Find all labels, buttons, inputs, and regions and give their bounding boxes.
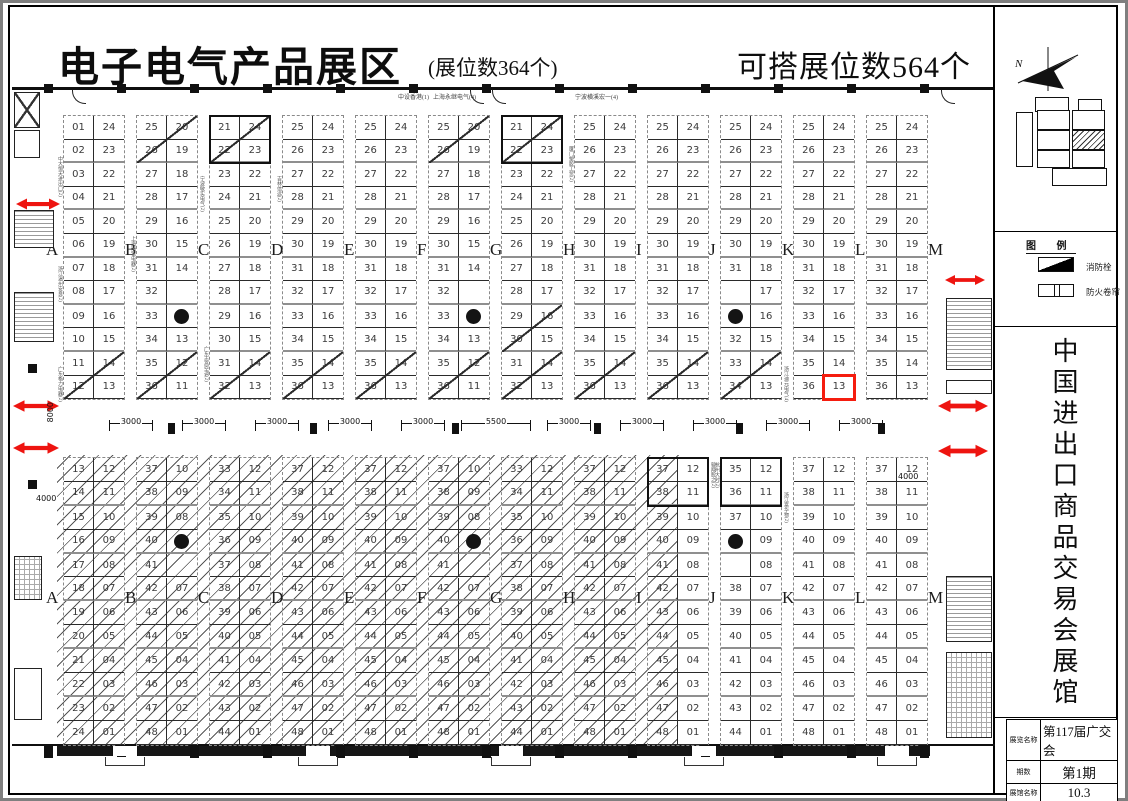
title-block-label: 展览名称 [1007, 720, 1041, 760]
booth-cell: 20 [94, 210, 124, 234]
booth-cell: 31 [867, 258, 897, 282]
booth-cell: 17 [64, 554, 94, 578]
booth-cell: 04 [824, 649, 854, 673]
booth-cell: 36 [283, 376, 313, 400]
booth-cell: 30 [356, 234, 386, 258]
booth-cell: 48 [867, 721, 897, 745]
booth-cell: 22 [313, 163, 343, 187]
booth-cell: 09 [605, 530, 635, 554]
booth-cell: 44 [648, 625, 678, 649]
booth-cell: 06 [240, 601, 270, 625]
wall-structure [14, 130, 40, 158]
booth-cell: 27 [794, 163, 824, 187]
booth-cell: 24 [386, 116, 416, 140]
booth-cell: 06 [386, 601, 416, 625]
booth-cell: 36 [648, 376, 678, 400]
booth-cell: 39 [721, 601, 751, 625]
booth-cell: 35 [867, 352, 897, 376]
booth-cell: 21 [313, 187, 343, 211]
booth-cell: 28 [867, 187, 897, 211]
booth-cell: 14 [824, 352, 854, 376]
booth-cell: 33 [648, 305, 678, 329]
booth-cell: 08 [459, 506, 489, 530]
column-letter-E: E [344, 240, 354, 260]
booth-group: 2124222323222421252026192718281729163015… [209, 115, 271, 400]
booth-cell: 08 [751, 554, 781, 578]
booth-cell: 22 [751, 163, 781, 187]
booth-cell: 22 [94, 163, 124, 187]
booth-cell: 38 [502, 578, 532, 602]
booth-cell: 17 [897, 281, 927, 305]
booth-group: 2524262327222821292030193118321733163415… [574, 115, 636, 400]
booth-cell: 11 [897, 482, 927, 506]
booth-cell: 11 [678, 482, 708, 506]
booth-cell: 09 [240, 530, 270, 554]
wall-pillar [701, 84, 710, 93]
aisle-dimension: 5500 [461, 420, 531, 434]
booth-cell: 34 [794, 328, 824, 352]
booth-cell: 08 [678, 554, 708, 578]
exhibitor-label: 上海瑞银电器(2) [130, 236, 135, 272]
booth-cell: 16 [605, 305, 635, 329]
booth-cell: 10 [897, 506, 927, 530]
column-letter-J: J [709, 588, 716, 608]
booth-cell: 25 [210, 210, 240, 234]
booth-cell: 39 [137, 506, 167, 530]
booth-cell: 12 [824, 458, 854, 482]
booth-cell: 02 [678, 697, 708, 721]
booth-cell: 06 [459, 601, 489, 625]
booth-group: 3712381139104009410842074306440545044603… [793, 457, 855, 746]
booth-cell: 40 [502, 625, 532, 649]
booth-cell: 46 [648, 673, 678, 697]
dimension-4000-left: 4000 [36, 494, 56, 503]
booth-cell: 30 [429, 234, 459, 258]
booth-cell: 23 [210, 163, 240, 187]
booth-cell: 10 [824, 506, 854, 530]
aisle-pillar [452, 423, 459, 434]
booth-cell: 47 [794, 697, 824, 721]
aisle-dimension: 3000 [693, 420, 737, 434]
booth-cell: 24 [751, 116, 781, 140]
column-letter-H: H [563, 588, 575, 608]
booth-cell: 25 [867, 116, 897, 140]
booth-cell: 03 [386, 673, 416, 697]
booth-cell: 19 [532, 234, 562, 258]
booth-cell: 21 [605, 187, 635, 211]
column-letter-D: D [271, 240, 283, 260]
booth-cell: 16 [64, 530, 94, 554]
booth-cell: 02 [897, 697, 927, 721]
booth-cell: 19 [751, 234, 781, 258]
booth-cell: 18 [94, 258, 124, 282]
booth-cell: 28 [794, 187, 824, 211]
booth-cell: 08 [897, 554, 927, 578]
booth-cell: 40 [210, 625, 240, 649]
booth-cell: 21 [64, 649, 94, 673]
booth-cell: 11 [64, 352, 94, 376]
column-letter-K: K [782, 240, 794, 260]
booth-cell: 18 [678, 258, 708, 282]
booth-cell: 30 [210, 328, 240, 352]
booth-cell: 31 [575, 258, 605, 282]
booth-cell: 13 [94, 376, 124, 400]
aisle-dimension: 3000 [328, 420, 372, 434]
booth-cell: 15 [386, 328, 416, 352]
booth-cell: 06 [751, 601, 781, 625]
booth-cell: 19 [313, 234, 343, 258]
booth-cell: 05 [605, 625, 635, 649]
booth-cell: 30 [137, 234, 167, 258]
booth-cell: 28 [429, 187, 459, 211]
booth-cell: 44 [210, 721, 240, 745]
booth-cell: 04 [897, 649, 927, 673]
booth-cell: 32 [137, 281, 167, 305]
booth-cell: 10 [678, 506, 708, 530]
booth-cell: 22 [824, 163, 854, 187]
booth-cell: 20 [240, 210, 270, 234]
booth-cell: 16 [532, 305, 562, 329]
booth-group: 3712381139104009410842074306440545044603… [647, 457, 709, 746]
booth-cell: 40 [575, 530, 605, 554]
column-letter-I: I [636, 588, 642, 608]
booth-cell: 40 [794, 530, 824, 554]
wall-structure [946, 652, 992, 738]
aisle-dimension: 3000 [182, 420, 226, 434]
structural-pillar [728, 309, 743, 324]
booth-group: 3712381139104009410842074306440545044603… [574, 457, 636, 746]
booth-cell: 03 [167, 673, 197, 697]
sidebar-rule [995, 231, 1118, 232]
exhibitor-label: 浙江迪元电气(4) [783, 366, 788, 402]
aisle-dimension: 3000 [839, 420, 883, 434]
column-letter-F: F [417, 240, 426, 260]
booth-cell: 13 [459, 328, 489, 352]
booth-cell: 13 [386, 376, 416, 400]
column-letter-M: M [928, 588, 943, 608]
booth-cell: 41 [502, 649, 532, 673]
booth-cell: 40 [283, 530, 313, 554]
booth-cell: 40 [721, 625, 751, 649]
booth-cell: 18 [313, 258, 343, 282]
booth-cell: 16 [824, 305, 854, 329]
booth-cell: 29 [575, 210, 605, 234]
entrance-gap [691, 746, 717, 756]
booth-cell: 42 [502, 673, 532, 697]
booth-cell: 23 [824, 140, 854, 164]
booth-cell: 04 [678, 649, 708, 673]
wall-pillar [555, 84, 564, 93]
column-letter-M: M [928, 240, 943, 260]
booth-cell: 05 [240, 625, 270, 649]
booth-cell: 45 [356, 649, 386, 673]
booth-cell: 05 [167, 625, 197, 649]
floorplan-screenshot: 电子电气产品展区 (展位数364个) 可搭展位数564个 01240223032… [0, 0, 1128, 801]
booth-group: 3512361137100908380739064005410442034302… [720, 457, 782, 746]
booth-cell: 21 [502, 116, 532, 140]
booth-cell: 35 [648, 352, 678, 376]
wall-structure [946, 380, 992, 394]
wall-pillar [774, 745, 783, 758]
booth-cell: 30 [794, 234, 824, 258]
booth-cell: 39 [210, 601, 240, 625]
booth-cell: 21 [824, 187, 854, 211]
booth-cell: 14 [313, 352, 343, 376]
booth-group: 3312341135103609370838073906400541044203… [209, 457, 271, 746]
booth-cell: 21 [210, 116, 240, 140]
booth-cell: 02 [605, 697, 635, 721]
booth-cell: 03 [240, 673, 270, 697]
column-letter-L: L [855, 240, 865, 260]
booth-cell: 06 [94, 601, 124, 625]
fire-shutter-icon [1038, 284, 1074, 297]
booth-cell: 10 [532, 506, 562, 530]
booth-cell: 30 [721, 234, 751, 258]
booth-cell: 27 [867, 163, 897, 187]
booth-cell: 38 [429, 482, 459, 506]
booth-cell: 21 [94, 187, 124, 211]
booth-cell: 05 [64, 210, 94, 234]
booth-cell: 32 [867, 281, 897, 305]
booth-cell: 23 [751, 140, 781, 164]
entrance-gap [884, 746, 910, 756]
key-plan-block [1037, 150, 1070, 168]
aisle-dimension: 3000 [255, 420, 299, 434]
booth-cell: 47 [137, 697, 167, 721]
booth-cell: 07 [313, 578, 343, 602]
exhibitor-label: 宁波敏实电气(2) [199, 176, 204, 212]
booth-cell: 35 [210, 506, 240, 530]
aisle-dimension: 3000 [401, 420, 445, 434]
booth-cell: 15 [64, 506, 94, 530]
key-plan-block [1072, 110, 1105, 130]
booth-cell: 11 [313, 482, 343, 506]
booth-cell: 17 [94, 281, 124, 305]
entrance-gap [498, 746, 524, 756]
booth-cell: 36 [575, 376, 605, 400]
booth-cell: 32 [575, 281, 605, 305]
booth-cell: 41 [648, 554, 678, 578]
wall-pillar [44, 745, 53, 758]
booth-cell: 46 [867, 673, 897, 697]
booth-cell: 25 [356, 116, 386, 140]
booth-cell: 12 [94, 458, 124, 482]
booth-cell: 42 [356, 578, 386, 602]
booth-cell: 21 [532, 187, 562, 211]
booth-cell: 01 [240, 721, 270, 745]
booth-cell: 13 [532, 376, 562, 400]
column-letter-D: D [271, 588, 283, 608]
booth-cell: 35 [575, 352, 605, 376]
entrance-gap [305, 746, 331, 756]
booth-cell: 39 [867, 506, 897, 530]
booth-cell: 19 [678, 234, 708, 258]
booth-cell: 33 [356, 305, 386, 329]
booth-cell: 39 [429, 506, 459, 530]
booth-cell: 40 [429, 530, 459, 554]
exhibitor-label: 杭州大时(2) [714, 462, 719, 488]
booth-cell: 41 [210, 649, 240, 673]
booth-cell: 31 [721, 258, 751, 282]
booth-cell: 17 [240, 281, 270, 305]
booth-cell: 43 [648, 601, 678, 625]
booth-cell: 27 [210, 258, 240, 282]
booth-cell: 22 [210, 140, 240, 164]
booth-cell: 05 [459, 625, 489, 649]
booth-cell: 43 [429, 601, 459, 625]
booth-cell: 38 [575, 482, 605, 506]
booth-cell: 07 [240, 578, 270, 602]
booth-cell: 48 [794, 721, 824, 745]
booth-cell: 14 [240, 352, 270, 376]
booth-cell: 31 [356, 258, 386, 282]
entrance-porch [298, 757, 338, 766]
booth-cell: 05 [897, 625, 927, 649]
booth-cell: 01 [167, 721, 197, 745]
booth-cell: 32 [210, 376, 240, 400]
legend-label-hydrant: 消防栓 [1086, 261, 1112, 273]
wall-pillar [628, 745, 637, 758]
booth-cell: 03 [678, 673, 708, 697]
booth-cell: 05 [532, 625, 562, 649]
booth-cell: 14 [386, 352, 416, 376]
wall-pillar [44, 84, 53, 93]
booth-cell: 02 [824, 697, 854, 721]
booth-cell: 16 [751, 305, 781, 329]
booth-cell: 21 [751, 187, 781, 211]
booth-cell: 46 [794, 673, 824, 697]
booth-cell: 01 [532, 721, 562, 745]
booth-cell: 14 [605, 352, 635, 376]
booth-cell: 10 [313, 506, 343, 530]
booth-cell: 38 [356, 482, 386, 506]
booth-cell: 25 [721, 116, 751, 140]
booth-cell: 12 [751, 458, 781, 482]
aisle-dimension: 3000 [766, 420, 810, 434]
booth-cell: 03 [313, 673, 343, 697]
booth-cell: 33 [210, 458, 240, 482]
booth-cell: 15 [751, 328, 781, 352]
booth-cell: 35 [794, 352, 824, 376]
booth-cell: 29 [721, 210, 751, 234]
booth-cell: 32 [502, 376, 532, 400]
booth-cell: 35 [356, 352, 386, 376]
booth-cell: 04 [313, 649, 343, 673]
booth-cell: 04 [605, 649, 635, 673]
booth-cell: 06 [897, 601, 927, 625]
aisle-dimension: 3000 [547, 420, 591, 434]
booth-cell: 09 [824, 530, 854, 554]
column-letter-H: H [563, 240, 575, 260]
booth-cell: 15 [678, 328, 708, 352]
booth-cell: 13 [605, 376, 635, 400]
booth-cell: 35 [283, 352, 313, 376]
booth-cell: 01 [605, 721, 635, 745]
booth-cell [167, 281, 197, 305]
booth-cell: 04 [751, 649, 781, 673]
booth-cell: 31 [648, 258, 678, 282]
booth-cell: 26 [794, 140, 824, 164]
entrance-porch [105, 757, 145, 766]
booth-cell: 48 [648, 721, 678, 745]
booth-cell: 37 [429, 458, 459, 482]
booth-cell: 36 [721, 482, 751, 506]
booth-cell: 16 [897, 305, 927, 329]
booth-cell: 10 [459, 458, 489, 482]
booth-cell: 13 [240, 376, 270, 400]
booth-cell: 37 [502, 554, 532, 578]
booth-cell: 22 [502, 140, 532, 164]
booth-cell: 28 [283, 187, 313, 211]
booth-cell: 31 [210, 352, 240, 376]
aisle-dimension: 3000 [109, 420, 153, 434]
booth-cell: 33 [283, 305, 313, 329]
booth-cell: 44 [137, 625, 167, 649]
booth-cell: 33 [575, 305, 605, 329]
booth-cell: 24 [824, 116, 854, 140]
title-block-value: 第117届广交会 [1041, 720, 1117, 760]
booth-cell: 18 [167, 163, 197, 187]
booth-cell: 34 [721, 376, 751, 400]
booth-cell: 04 [459, 649, 489, 673]
booth-cell: 41 [137, 554, 167, 578]
booth-cell: 37 [648, 458, 678, 482]
booth-group: 2524262327222821292030193118321733163415… [355, 115, 417, 400]
booth-cell: 15 [824, 328, 854, 352]
booth-cell: 08 [532, 554, 562, 578]
booth-cell: 07 [64, 258, 94, 282]
booth-cell: 18 [605, 258, 635, 282]
booth-cell: 22 [678, 163, 708, 187]
booth-cell: 38 [867, 482, 897, 506]
booth-cell: 08 [313, 554, 343, 578]
structural-pillar [174, 534, 189, 549]
booth-cell [721, 554, 751, 578]
restroom-block [14, 292, 54, 342]
booth-cell: 31 [283, 258, 313, 282]
booth-cell: 02 [240, 697, 270, 721]
booth-group: 2524262327222821292030193118321733163415… [282, 115, 344, 400]
booth-cell: 03 [824, 673, 854, 697]
wall-pillar [847, 84, 856, 93]
booth-cell: 27 [137, 163, 167, 187]
booth-cell: 24 [64, 721, 94, 745]
booth-cell: 38 [794, 482, 824, 506]
booth-cell: 12 [64, 376, 94, 400]
exhibitor-label: 广东格力电器(2) [57, 366, 62, 402]
booth-cell: 37 [283, 458, 313, 482]
entrance-porch [684, 757, 724, 766]
exhibitor-label: 广东志高空调(2) [203, 346, 208, 382]
booth-cell: 22 [240, 163, 270, 187]
booth-cell: 38 [648, 482, 678, 506]
booth-cell: 31 [502, 352, 532, 376]
booth-cell: 13 [313, 376, 343, 400]
booth-cell: 06 [824, 601, 854, 625]
fire-hydrant-icon [1038, 257, 1074, 272]
booth-cell: 21 [240, 187, 270, 211]
booth-cell: 03 [751, 673, 781, 697]
booth-cell: 40 [137, 530, 167, 554]
booth-cell: 33 [794, 305, 824, 329]
booth-cell: 30 [283, 234, 313, 258]
booth-cell: 32 [648, 281, 678, 305]
booth-cell: 06 [167, 601, 197, 625]
column-letter-C: C [198, 588, 209, 608]
booth-cell: 23 [94, 140, 124, 164]
circulation-arrow-icon [945, 272, 985, 288]
key-plan-current-hall [1072, 130, 1105, 150]
